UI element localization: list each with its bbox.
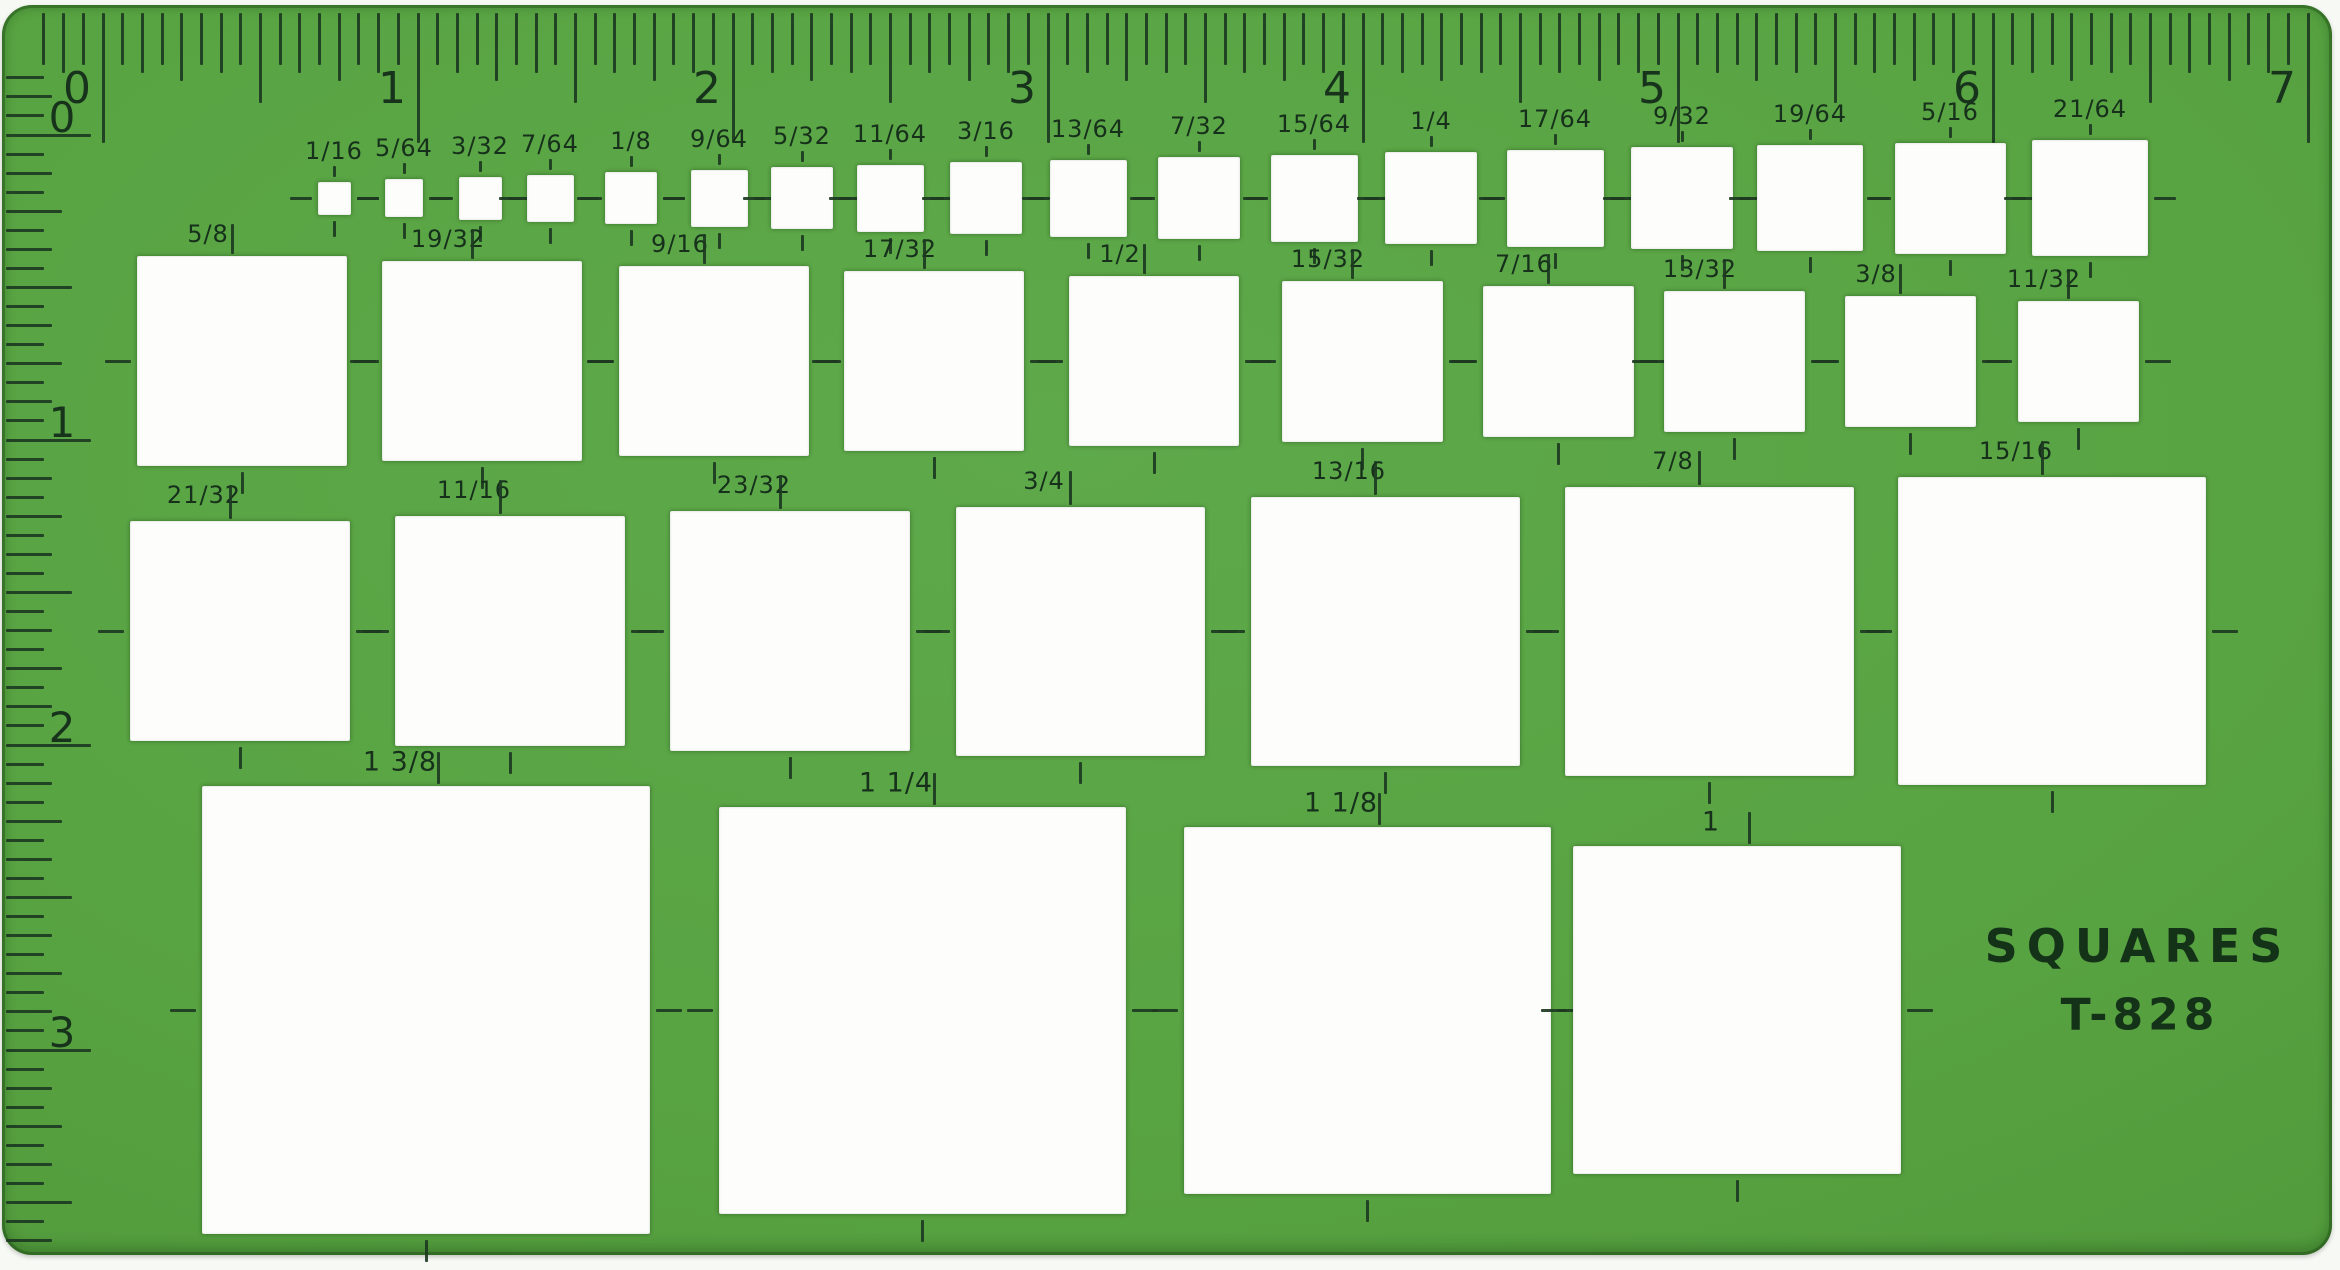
label-tick [1809, 129, 1812, 140]
registration-tick-left [1357, 197, 1379, 200]
left-ruler-tick [6, 477, 52, 480]
top-ruler-tick [653, 13, 656, 81]
left-ruler-tick [6, 953, 44, 956]
top-ruler-tick [121, 13, 124, 65]
top-ruler-tick [82, 13, 85, 65]
top-ruler-tick [2307, 13, 2310, 143]
registration-tick-bottom [2089, 262, 2092, 278]
top-ruler-tick [476, 13, 479, 65]
square-size-label: 3/32 [451, 134, 509, 158]
top-ruler-tick [1480, 13, 1483, 73]
label-tick [229, 485, 232, 519]
top-ruler-tick [1834, 13, 1837, 103]
square-cutout [1385, 152, 1477, 244]
left-ruler-tick [6, 1220, 44, 1223]
top-ruler-tick [1381, 13, 1384, 65]
top-ruler-tick [1047, 13, 1050, 143]
top-ruler-tick [968, 13, 971, 81]
square-cutout [1251, 497, 1520, 766]
top-ruler-tick [732, 13, 735, 143]
square-size-label: 1/8 [610, 129, 652, 153]
left-ruler-tick [6, 534, 44, 537]
top-ruler-tick [1598, 13, 1601, 81]
square-cutout [1158, 157, 1240, 239]
top-ruler-tick [2011, 13, 2014, 65]
label-tick [333, 166, 336, 177]
top-ruler-tick [180, 13, 183, 81]
registration-tick-right [1907, 1009, 1933, 1012]
registration-tick-left [1037, 360, 1063, 363]
left-ruler-tick [6, 572, 44, 575]
square-size-label: 1/16 [305, 139, 363, 163]
left-ruler-number: 0 [49, 97, 76, 139]
left-ruler-tick [6, 858, 52, 861]
square-size-label: 1 3/8 [363, 749, 437, 776]
registration-tick-left [350, 360, 376, 363]
registration-tick-bottom [1430, 250, 1433, 266]
left-ruler-tick [6, 820, 62, 823]
top-ruler-tick [594, 13, 597, 65]
top-ruler-tick [1716, 13, 1719, 73]
registration-tick-right [2212, 630, 2238, 633]
top-ruler-tick [1263, 13, 1266, 65]
left-ruler-tick [6, 686, 44, 689]
top-ruler-tick [220, 13, 223, 73]
registration-tick-left [1986, 360, 2012, 363]
label-tick [479, 161, 482, 172]
registration-tick-bottom [921, 1220, 924, 1242]
left-ruler-tick [6, 324, 52, 327]
registration-tick-left [587, 360, 613, 363]
template-title: SQUARES [1985, 919, 2292, 973]
registration-tick-right [2154, 197, 2176, 200]
square-size-label: 5/32 [773, 124, 831, 148]
top-ruler-tick [850, 13, 853, 73]
left-ruler-tick [6, 76, 44, 79]
registration-tick-bottom [630, 230, 633, 246]
registration-tick-left [1813, 360, 1839, 363]
square-cutout [844, 271, 1024, 451]
top-ruler-tick [672, 13, 675, 65]
registration-tick-left [922, 197, 944, 200]
registration-tick-bottom [1733, 438, 1736, 460]
registration-tick-bottom [1909, 433, 1912, 455]
label-tick [1748, 812, 1751, 844]
square-cutout [1895, 143, 2006, 254]
label-tick [1087, 144, 1090, 155]
square-cutout [956, 507, 1205, 756]
top-ruler-tick [1992, 13, 1995, 143]
top-ruler-tick [2110, 13, 2113, 73]
left-ruler-tick [6, 991, 44, 994]
square-cutout [382, 261, 582, 461]
registration-tick-bottom [403, 223, 406, 239]
square-cutout [1483, 286, 1634, 437]
registration-tick-left [1243, 197, 1265, 200]
left-ruler-tick [6, 248, 52, 251]
square-cutout [385, 179, 423, 217]
left-ruler-tick [6, 877, 44, 880]
square-size-label: 9/64 [690, 127, 748, 151]
square-cutout [395, 516, 625, 746]
registration-tick-left [1130, 197, 1152, 200]
label-tick [1351, 249, 1354, 279]
top-ruler-tick [2090, 13, 2093, 65]
top-ruler-tick [259, 13, 262, 103]
top-ruler-tick [928, 13, 931, 73]
registration-tick-left [1533, 630, 1559, 633]
top-ruler-tick [1027, 13, 1030, 65]
label-tick [703, 234, 706, 264]
registration-tick-left [170, 1009, 196, 1012]
top-ruler-tick [2287, 13, 2290, 65]
left-ruler-tick [6, 172, 52, 175]
top-ruler-tick [1184, 13, 1187, 65]
label-tick [2089, 124, 2092, 135]
top-ruler-tick [298, 13, 301, 73]
left-ruler-tick [6, 972, 62, 975]
top-ruler-tick [1696, 13, 1699, 65]
left-ruler-tick [6, 591, 72, 594]
photo-of-drafting-template: { "template": { "title": "SQUARES", "mod… [0, 0, 2340, 1270]
label-tick [1374, 461, 1377, 495]
registration-tick-left [663, 197, 685, 200]
top-ruler-tick [397, 13, 400, 65]
left-ruler-tick [6, 1029, 44, 1032]
square-size-label: 5/16 [1921, 100, 1979, 124]
registration-tick-bottom [801, 235, 804, 251]
left-ruler-tick [6, 667, 62, 670]
top-ruler-tick [1362, 13, 1365, 143]
top-ruler-tick [338, 13, 341, 81]
label-tick [403, 163, 406, 174]
top-ruler-tick [239, 13, 242, 65]
square-size-label: 19/32 [411, 227, 485, 251]
top-ruler-tick [1972, 13, 1975, 65]
left-ruler-tick [6, 191, 44, 194]
label-tick [1378, 793, 1381, 825]
top-ruler-tick [2129, 13, 2132, 65]
top-ruler-tick [712, 13, 715, 65]
square-cutout [2018, 301, 2139, 422]
square-cutout [2032, 140, 2148, 256]
registration-tick-left [363, 630, 389, 633]
top-ruler-tick [357, 13, 360, 65]
top-ruler-tick [1165, 13, 1168, 73]
top-ruler-tick [1460, 13, 1463, 65]
top-ruler-tick [535, 13, 538, 73]
left-ruler-tick [6, 153, 44, 156]
square-size-label: 7/32 [1170, 114, 1228, 138]
registration-tick-bottom [509, 752, 512, 774]
registration-tick-left [1022, 197, 1044, 200]
top-ruler-tick [515, 13, 518, 65]
top-ruler-tick [2247, 13, 2250, 65]
registration-tick-left [499, 197, 521, 200]
top-ruler-tick [1814, 13, 1817, 65]
top-ruler-tick [613, 13, 616, 73]
registration-tick-left [1250, 360, 1276, 363]
top-ruler-tick [771, 13, 774, 73]
square-cutout [1757, 145, 1863, 251]
square-cutout [137, 256, 347, 466]
square-size-label: 9/16 [651, 232, 709, 256]
left-ruler-tick [6, 1068, 44, 1071]
square-cutout [1573, 846, 1901, 1174]
label-tick [889, 149, 892, 160]
left-ruler-tick [6, 1087, 52, 1090]
left-ruler-tick [6, 839, 44, 842]
registration-tick-bottom [1554, 253, 1557, 269]
top-ruler-tick [279, 13, 282, 65]
registration-tick-bottom [789, 757, 792, 779]
registration-tick-left [357, 197, 379, 200]
top-ruler-tick [456, 13, 459, 73]
square-size-label: 5/64 [375, 136, 433, 160]
registration-tick-bottom [2051, 791, 2054, 813]
top-ruler-tick [2208, 13, 2211, 65]
square-size-label: 1 1/8 [1304, 789, 1378, 816]
label-tick [2067, 269, 2070, 299]
left-ruler-tick [6, 496, 44, 499]
registration-tick-left [1152, 1009, 1178, 1012]
square-size-label: 7/8 [1652, 449, 1694, 473]
top-ruler-tick [869, 13, 872, 65]
left-ruler-tick [6, 381, 44, 384]
stencil-body: 01234567 0123 1/165/643/327/641/89/645/3… [2, 5, 2332, 1255]
registration-tick-left [638, 630, 664, 633]
registration-tick-bottom [1384, 772, 1387, 794]
label-tick [1198, 141, 1201, 152]
label-tick [471, 229, 474, 259]
registration-tick-bottom [1557, 443, 1560, 465]
top-ruler-tick [633, 13, 636, 65]
square-cutout [619, 266, 809, 456]
label-tick [1069, 471, 1072, 505]
square-cutout [202, 786, 650, 1234]
top-ruler-tick [2070, 13, 2073, 81]
left-ruler-tick [6, 1182, 44, 1185]
left-ruler-tick [6, 229, 44, 232]
square-cutout [670, 511, 910, 751]
registration-tick-left [1541, 1009, 1567, 1012]
top-ruler-tick [810, 13, 813, 81]
square-cutout [1282, 281, 1443, 442]
top-ruler-tick [2188, 13, 2191, 73]
top-ruler-tick [161, 13, 164, 65]
registration-tick-bottom [2077, 428, 2080, 450]
top-ruler-tick [1854, 13, 1857, 65]
top-ruler-tick [909, 13, 912, 65]
top-ruler-tick [1736, 13, 1739, 65]
square-cutout [691, 170, 748, 227]
square-size-label: 7/16 [1495, 252, 1553, 276]
registration-tick-bottom [718, 233, 721, 249]
registration-tick-bottom [1809, 257, 1812, 273]
left-ruler-tick [6, 419, 44, 422]
square-cutout [1271, 155, 1358, 242]
registration-tick-left [1219, 630, 1245, 633]
left-ruler-tick [6, 1106, 44, 1109]
registration-tick-left [577, 197, 599, 200]
registration-tick-left [98, 630, 124, 633]
top-ruler-number: 2 [693, 67, 721, 111]
square-size-label: 9/32 [1653, 104, 1711, 128]
top-ruler-tick [1775, 13, 1778, 65]
label-tick [1681, 131, 1684, 142]
left-ruler-tick [6, 95, 52, 98]
label-tick [985, 146, 988, 157]
registration-tick-left [1866, 630, 1892, 633]
registration-tick-bottom [1198, 245, 1201, 261]
left-ruler-tick [6, 343, 44, 346]
top-ruler-tick [42, 13, 45, 65]
square-cutout [605, 172, 657, 224]
registration-tick-left [431, 197, 453, 200]
registration-tick-left [743, 197, 765, 200]
left-ruler-tick [6, 648, 44, 651]
left-ruler-tick [6, 763, 44, 766]
registration-tick-bottom [713, 462, 716, 484]
label-tick [1313, 139, 1316, 150]
square-size-label: 13/32 [1663, 257, 1737, 281]
top-ruler-tick [1401, 13, 1404, 73]
top-ruler-tick [791, 13, 794, 65]
square-cutout [527, 175, 574, 222]
top-ruler-tick [1302, 13, 1305, 65]
square-size-label: 19/64 [1773, 102, 1847, 126]
registration-tick-left [1729, 197, 1751, 200]
top-ruler-tick [1578, 13, 1581, 65]
registration-tick-bottom [1087, 243, 1090, 259]
top-ruler-tick [1657, 13, 1660, 65]
registration-tick-left [812, 360, 838, 363]
label-tick [1698, 451, 1701, 485]
square-size-label: 1 [1702, 809, 1720, 836]
square-cutout [719, 807, 1126, 1214]
registration-tick-left [1451, 360, 1477, 363]
top-ruler-tick [141, 13, 144, 73]
top-ruler-tick [417, 13, 420, 143]
top-ruler-tick [948, 13, 951, 65]
left-ruler-tick [6, 1239, 52, 1242]
square-size-label: 11/64 [853, 122, 927, 146]
top-ruler-tick [554, 13, 557, 65]
top-ruler-tick [200, 13, 203, 65]
label-tick [1143, 244, 1146, 274]
left-ruler-tick [6, 782, 52, 785]
top-ruler-tick [1243, 13, 1246, 73]
top-ruler-tick [1066, 13, 1069, 65]
square-cutout [318, 182, 351, 215]
left-ruler-tick [6, 458, 44, 461]
square-size-label: 1/4 [1410, 109, 1452, 133]
label-tick [1547, 254, 1550, 284]
square-cutout [1898, 477, 2206, 785]
label-tick [231, 224, 234, 254]
registration-tick-bottom [985, 240, 988, 256]
left-ruler-tick [6, 210, 62, 213]
left-ruler-tick [6, 1010, 52, 1013]
label-tick [1899, 264, 1902, 294]
label-tick [549, 159, 552, 170]
registration-tick-right [2145, 360, 2171, 363]
square-size-label: 1 1/4 [859, 769, 933, 796]
square-cutout [1050, 160, 1127, 237]
top-ruler-tick [1558, 13, 1561, 73]
top-ruler-tick [1224, 13, 1227, 65]
label-tick [499, 480, 502, 514]
left-ruler-tick [6, 515, 62, 518]
left-ruler-tick [6, 705, 52, 708]
left-ruler-number: 1 [49, 402, 76, 444]
top-ruler-number: 7 [2268, 67, 2296, 111]
left-ruler-tick [6, 400, 52, 403]
square-size-label: 1/2 [1099, 242, 1141, 266]
top-ruler-tick [495, 13, 498, 81]
square-cutout [1565, 487, 1854, 776]
registration-tick-left [105, 360, 131, 363]
square-cutout [1184, 827, 1551, 1194]
left-ruler-tick [6, 267, 44, 270]
left-ruler-tick [6, 1201, 72, 1204]
square-size-label: 7/64 [521, 132, 579, 156]
label-tick [718, 154, 721, 165]
square-size-label: 3/4 [1023, 469, 1065, 493]
top-ruler-tick [1539, 13, 1542, 65]
top-ruler-tick [436, 13, 439, 65]
square-cutout [857, 165, 924, 232]
label-tick [1554, 134, 1557, 145]
label-tick [1949, 127, 1952, 138]
top-ruler-tick [2031, 13, 2034, 73]
registration-tick-bottom [425, 1240, 428, 1262]
left-ruler-tick [6, 553, 52, 556]
registration-tick-left [290, 197, 312, 200]
registration-tick-left [1479, 197, 1501, 200]
template-model: T-828 [2061, 990, 2220, 1041]
square-size-label: 13/64 [1051, 117, 1125, 141]
square-size-label: 3/16 [957, 119, 1015, 143]
label-tick [1723, 259, 1726, 289]
top-ruler-tick [751, 13, 754, 65]
top-ruler-tick [2169, 13, 2172, 65]
top-ruler-tick [2149, 13, 2152, 103]
registration-tick-left [829, 197, 851, 200]
left-ruler-number: 3 [49, 1012, 76, 1054]
square-cutout [1069, 276, 1239, 446]
top-ruler-tick [1283, 13, 1286, 81]
left-ruler-number: 2 [49, 707, 76, 749]
registration-tick-bottom [239, 747, 242, 769]
square-cutout [1631, 147, 1733, 249]
label-tick [437, 752, 440, 784]
registration-tick-bottom [933, 457, 936, 479]
registration-tick-bottom [1736, 1180, 1739, 1202]
square-size-label: 5/8 [187, 222, 229, 246]
label-tick [933, 773, 936, 805]
registration-tick-left [687, 1009, 713, 1012]
square-cutout [1507, 150, 1604, 247]
label-tick [779, 475, 782, 509]
square-size-label: 17/32 [863, 237, 937, 261]
registration-tick-bottom [1708, 782, 1711, 804]
registration-tick-bottom [1153, 452, 1156, 474]
top-ruler-tick [2051, 13, 2054, 65]
registration-tick-bottom [549, 228, 552, 244]
registration-tick-bottom [333, 221, 336, 237]
top-ruler-tick [574, 13, 577, 103]
